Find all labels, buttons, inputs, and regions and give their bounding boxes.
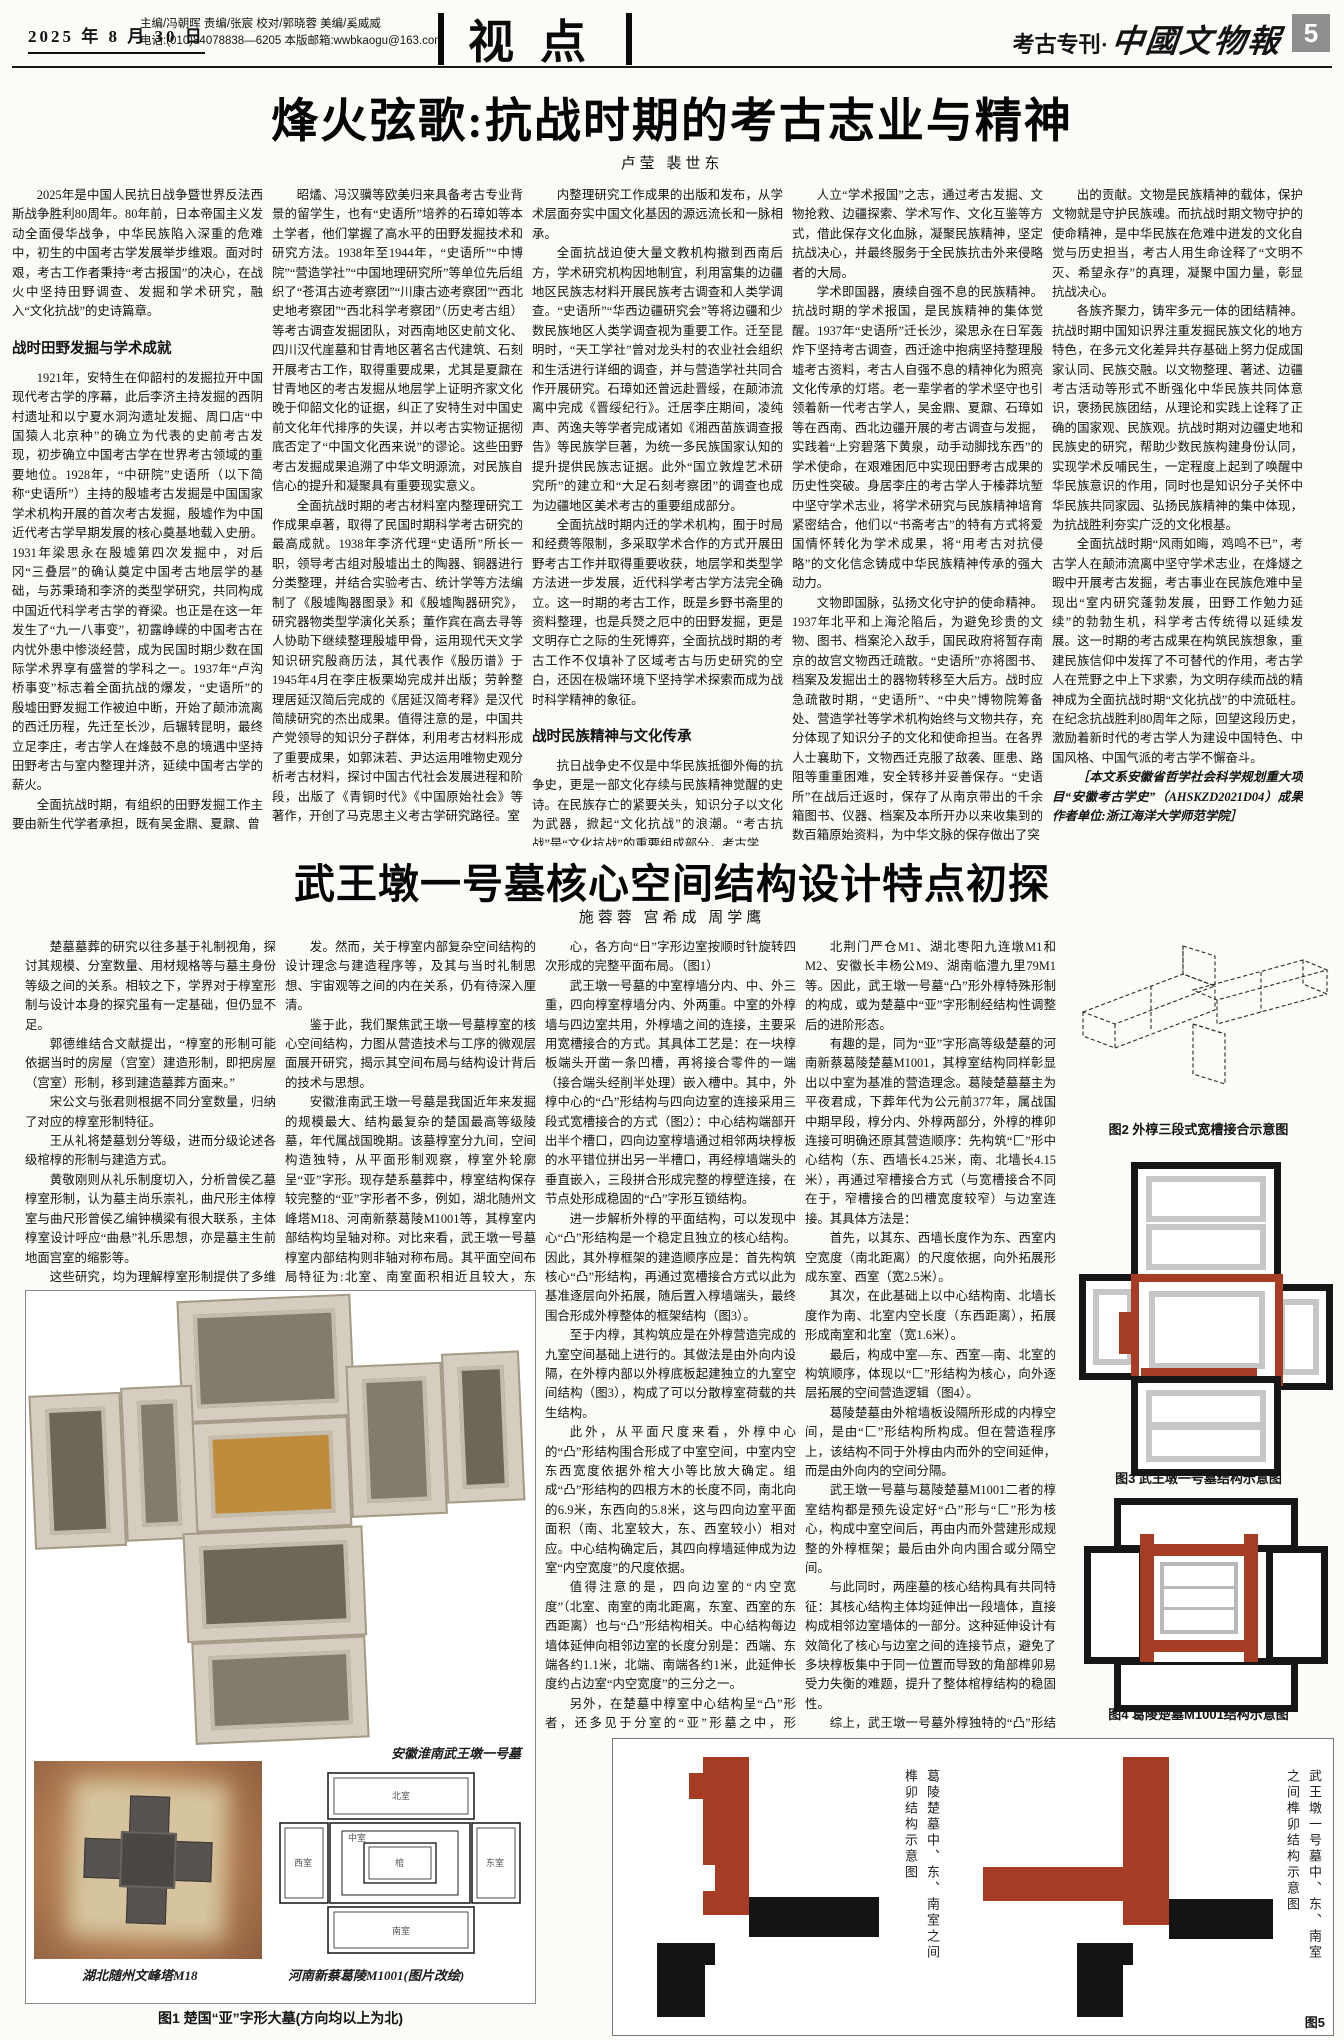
- article2-paragraph: 进一步解析外椁的平面结构，可以发现中心“凸”形结构是一个稳定且独立的核心结构。因…: [545, 1210, 796, 1326]
- article2-paragraph: 值得注意的是，四向边室的“内空宽度”（北室、南室的南北距离，东室、西室的东西距离…: [545, 1578, 796, 1694]
- article1-paragraph: 内整理研究工作成果的出版和发布，从学术层面夯实中国文化基因的源远流长和一脉相承。: [532, 186, 783, 244]
- article1-paragraph: 全面抗战迫使大量文教机构撤到西南后方，学术研究机构因地制宜，利用富集的边疆地区民…: [532, 244, 783, 516]
- figure1-plan-m1001: 北室 南室 西室 东室 中室 棺: [272, 1769, 528, 1957]
- article2-paragraph: 安徽淮南武王墩一号墓是我国近年来发掘的规模最大、结构最复杂的楚国最高等级陵墓，年…: [285, 1093, 536, 1286]
- article2-paragraph: 最后，构成中室—东、西室—南、北室的构筑顺序，体现以“匚”形结构为核心，向外逐层…: [805, 1346, 1056, 1404]
- article2-paragraph: 武王墩一号墓与葛陵楚墓M1001二者的椁室结构都是预先设定好“凸”形与“匚”形为…: [805, 1481, 1056, 1578]
- article1-column-4: 人立“学术报国”之志，通过考古发掘、文物抢救、边疆探索、学术写作、文化互鉴等方式…: [792, 186, 1043, 846]
- tomb-room-center: [192, 1416, 353, 1533]
- article2-paragraph: 鉴于此，我们聚焦武王墩一号墓椁室的核心空间结构，力图从营造技术与工序的微观层面展…: [285, 1016, 536, 1094]
- article1-columns: 2025年是中国人民抗日战争暨世界反法西斯战争胜利80周年。80年前，日本帝国主…: [12, 186, 1332, 846]
- article1-paragraph: 文物即国脉，弘扬文化守护的使命精神。1937年北平和上海沦陷后，为避免珍贵的文物…: [792, 594, 1043, 846]
- diagram2-room-east: [1266, 1546, 1328, 1664]
- figure1-photo-wenfengta-m18: [34, 1761, 262, 1959]
- paper-name-block: 考古专刊· 中國文物報: [1013, 16, 1282, 62]
- article2-paragraph: 有趣的是，同为“亚”字形高等级楚墓的河南新蔡葛陵楚墓M1001，其椁室结构同样彰…: [805, 1035, 1056, 1229]
- article1-paragraph: 全面抗战时期的考古材料室内整理研究工作成果卓著，取得了民国时期科学考古研究的最高…: [272, 497, 523, 827]
- figure4-diagram: [1084, 1498, 1314, 1698]
- article1-paragraph: 学术即国器，赓续自强不息的民族精神。抗战时期的学术报国，是民族精神的集体觉醒。1…: [792, 283, 1043, 594]
- diagram2-room-west: [1084, 1546, 1146, 1664]
- article2-column-2: 发。然而，关于椁室内部复杂空间结构的设计理念与建造程序等，及其与当时礼制思想、宇…: [285, 938, 536, 1286]
- diagram-room-south: [1131, 1376, 1281, 1476]
- article2-paragraph: 王从礼将楚墓划分等级，进而分级论述各级棺椁的形制与建造方式。: [25, 1132, 276, 1171]
- figure1-caption: 图1 楚国“亚”字形大墓(方向均以上为北): [25, 2008, 536, 2028]
- article2-paragraph: 武王墩一号墓的中室椁墙分内、中、外三重，四向椁室椁墙分内、外两重。中室的外椁墙与…: [545, 977, 796, 1210]
- article1-paragraph: 全面抗战时期，有组织的田野发掘工作主要由新生代学者承担，既有吴金鼎、夏鼐、曾: [12, 796, 263, 835]
- plan-label-center: 中室: [348, 1832, 366, 1843]
- figure5: 葛陵楚墓中、东、南室之间榫卯结构示意图 武王墩一号墓中、东、南室之间榫卯结构示意…: [612, 1738, 1334, 2036]
- article2-column-3: 心，各方向“日”字形边室按顺时针旋转四次形成的完整平面布局。（图1） 武王墩一号…: [545, 938, 796, 1734]
- article1-paragraph: 昭燏、冯汉骥等欧美归来具备考古专业背景的留学生，也有“史语所”培养的石璋如等本土…: [272, 186, 523, 497]
- figure5-caption: 图5: [1305, 2012, 1325, 2031]
- figure5-joint-geling: [643, 1757, 893, 2017]
- figure1-label-right: 河南新蔡葛陵M1001(图片改绘): [288, 1965, 464, 1984]
- contact-line: 电话:(010)84078838—6205 本版邮箱:wwbkaogu@163.…: [140, 33, 444, 50]
- article2-paragraph: 综上，武王墩一号墓外椁独特的“凸”形结构和边室三段式宽槽接合工艺，不仅代表了战国…: [805, 1714, 1056, 1734]
- article2-body: 楚墓墓葬的研究以往多基于礼制视角，探讨其规模、分室数量、用材规格等与墓主身份等级…: [12, 938, 1332, 2036]
- article1-column-3: 内整理研究工作成果的出版和发布，从学术层面夯实中国文化基因的源远流长和一脉相承。…: [532, 186, 783, 846]
- article1-section-heading-2: 战时民族精神与文化传承: [532, 725, 783, 746]
- edition-label: 考古专刊·: [1013, 27, 1108, 59]
- article2-paragraph: 郭德维结合文献提出，“椁室的形制可能依据当时的房屋（宫室）建造形制，即把房屋（宫…: [25, 1035, 276, 1093]
- article2-column-4: 北荆门严仓M1、湖北枣阳九连墩M1和M2、安徽长丰杨公M9、湖南临澧九里79M1…: [805, 938, 1056, 1734]
- article1-paragraph: 人立“学术报国”之志，通过考古发掘、文物抢救、边疆探索、学术写作、文化互鉴等方式…: [792, 186, 1043, 283]
- article1-column-1: 2025年是中国人民抗日战争暨世界反法西斯战争胜利80周年。80年前，日本帝国主…: [12, 186, 263, 846]
- page-number-badge: 5: [1292, 14, 1330, 52]
- plan-label-south: 南室: [392, 1925, 410, 1936]
- tomb-room-west-outer: [28, 1392, 127, 1550]
- figure2-isometric-drawing: [1065, 938, 1332, 1108]
- article2-paragraph: 至于内椁，其构筑应是在外椁营造完成的九室空间基础上进行的。其做法是由外向内设隔，…: [545, 1326, 796, 1423]
- editors-line: 主编/冯朝晖 责编/张宸 校对/郭晓蓉 美编/奚威威: [140, 16, 444, 33]
- article1-paragraph: 各族齐聚力，铸牢多元一体的团结精神。抗战时期中国知识界注重发掘民族文化的地方特色…: [1052, 302, 1303, 535]
- article1-paragraph: 出的贡献。文物是民族精神的载体，保护文物就是守护民族魂。而抗战时期文物守护的使命…: [1052, 186, 1303, 302]
- article2-paragraph: 发。然而，关于椁室内部复杂空间结构的设计理念与建造程序等，及其与当时礼制思想、宇…: [285, 938, 536, 1016]
- article2-title: 武王墩一号墓核心空间结构设计特点初探: [0, 850, 1344, 910]
- article1-authors: 卢莹 裴世东: [0, 152, 1344, 173]
- paper-name: 中國文物報: [1110, 16, 1285, 62]
- diagram-red-connector-south: [1141, 1368, 1257, 1376]
- masthead-left-bar: [438, 13, 444, 65]
- article1-funding-note: ［本文系安徽省哲学社会科学规划重大项目“安徽考古学史”（AHSKZD2021D0…: [1052, 768, 1303, 826]
- figure1-frame: 安徽淮南武王墩一号墓 湖北随州文峰塔M18: [25, 1290, 536, 2004]
- header-rule: [12, 66, 1332, 68]
- figure5-label-left: 葛陵楚墓中、东、南室之间榫卯结构示意图: [899, 1769, 943, 1965]
- article2-paragraph: 葛陵楚墓由外棺墙板设隔所形成的内椁空间，是由“匚”形结构所构成。但在营造程序上，…: [805, 1404, 1056, 1482]
- tomb-room-south-inner: [183, 1525, 368, 1643]
- article2-paragraph: 与此同时，两座墓的核心结构具有共同特征：其核心结构主体均延伸出一段墙体，直接构成…: [805, 1578, 1056, 1714]
- article1-paragraph: 1921年，安特生在仰韶村的发掘拉开中国现代考古学的序幕，此后李济主持发掘的西阴…: [12, 369, 263, 796]
- section-masthead: 视点: [438, 6, 632, 72]
- figure1-label-main: 安徽淮南武王墩一号墓: [391, 1743, 521, 1762]
- tomb-room-east-outer: [441, 1350, 525, 1503]
- article1-paragraph: 全面抗战时期内迁的学术机构，囿于时局和经费等限制，多采取学术合作的方式开展田野考…: [532, 516, 783, 710]
- figure5-joint-wuwangdun: [973, 1757, 1273, 2017]
- tomb-room-south-outer: [191, 1635, 369, 1744]
- figure3-diagram: [1079, 1162, 1319, 1462]
- diagram-red-connector-west: [1119, 1312, 1133, 1354]
- article2-paragraph: 心，各方向“日”字形边室按顺时针旋转四次形成的完整平面布局。（图1）: [545, 938, 796, 977]
- article1-paragraph: 2025年是中国人民抗日战争暨世界反法西斯战争胜利80周年。80年前，日本帝国主…: [12, 186, 263, 322]
- article2-paragraph: 此外，从平面尺度来看，外椁中心的“凸”形结构围合形成了中室空间，中室内空东西宽度…: [545, 1423, 796, 1578]
- masthead-right-bar: [626, 13, 632, 65]
- article2-paragraph: 北荆门严仓M1、湖北枣阳九连墩M1和M2、安徽长丰杨公M9、湖南临澧九里79M1…: [805, 938, 1056, 1035]
- diagram-room-north: [1131, 1162, 1281, 1284]
- article1-title: 烽火弦歌:抗战时期的考古志业与精神: [0, 82, 1344, 151]
- article2-paragraph: 另外，在楚墓中椁室中心结构呈“凸”形者，还多见于分室的“亚”形墓之中，形成“匚”…: [545, 1695, 796, 1734]
- plan-label-east: 东室: [486, 1857, 504, 1868]
- article2-paragraph: 宋公文与张君则根据不同分室数量，归纳了对应的椁室形制特征。: [25, 1093, 276, 1132]
- figure1-label-left: 湖北随州文峰塔M18: [82, 1965, 198, 1984]
- article2-paragraph: 其次，在此基础上以中心结构南、北墙长度作为南、北室内空长度（东西距离），拓展形成…: [805, 1287, 1056, 1345]
- article1-column-5: 出的贡献。文物是民族精神的载体，保护文物就是守护民族魂。而抗战时期文物守护的使命…: [1052, 186, 1303, 846]
- figure2-caption: 图2 外椁三段式宽槽接合示意图: [1065, 1119, 1332, 1138]
- masthead-meta: 主编/冯朝晖 责编/张宸 校对/郭晓蓉 美编/奚威威 电话:(010)84078…: [140, 16, 444, 50]
- figure4: 图4 葛陵楚墓M1001结构示意图: [1065, 1498, 1332, 1723]
- article1-paragraph: 全面抗战时期“风雨如晦，鸡鸣不已”，考古学人在颠沛流离中坚守学术志业，在烽燧之暇…: [1052, 535, 1303, 768]
- article1-column-2: 昭燏、冯汉骥等欧美归来具备考古专业背景的留学生，也有“史语所”培养的石璋如等本土…: [272, 186, 523, 846]
- figure1-photo-wuwangdun-chamber: [25, 1290, 535, 1752]
- diagram2-room-south: [1114, 1658, 1298, 1712]
- article2-column-1: 楚墓墓葬的研究以往多基于礼制视角，探讨其规模、分室数量、用材规格等与墓主身份等级…: [25, 938, 276, 1286]
- diagram2-center: [1140, 1534, 1258, 1662]
- plan-label-coffin: 棺: [395, 1857, 404, 1868]
- section-title: 视点: [458, 6, 612, 72]
- tomb-room-west-inner: [120, 1385, 199, 1542]
- tomb-room-north: [176, 1294, 355, 1423]
- article1-paragraph: 抗日战争史不仅是中华民族抵御外侮的抗争史，更是一部文化存续与民族精神觉醒的史诗。…: [532, 757, 783, 846]
- article2-paragraph: 首先，以其东、西墙长度作为东、西室内空宽度（南北距离）的尺度依据，向外拓展形成东…: [805, 1229, 1056, 1287]
- tomb-room-east-inner: [345, 1362, 448, 1518]
- article1-section-heading-1: 战时田野发掘与学术成就: [12, 337, 263, 358]
- figure5-label-right: 武王墩一号墓中、东、南室之间榫卯结构示意图: [1281, 1769, 1325, 1965]
- article2-paragraph: 这些研究，均为理解椁室形制提供了多维启: [25, 1268, 276, 1286]
- figure3: 图3 武王墩一号墓结构示意图: [1065, 1162, 1332, 1487]
- newspaper-page: 2025 年 8 月 30 日 主编/冯朝晖 责编/张宸 校对/郭晓蓉 美编/奚…: [0, 0, 1344, 2040]
- figure1: 安徽淮南武王墩一号墓 湖北随州文峰塔M18: [25, 1290, 536, 2034]
- plan-label-west: 西室: [294, 1857, 312, 1868]
- article2-paragraph: 楚墓墓葬的研究以往多基于礼制视角，探讨其规模、分室数量、用材规格等与墓主身份等级…: [25, 938, 276, 1035]
- article2-paragraph: 黄敬刚则从礼乐制度切入，分析曾侯乙墓椁室形制，认为墓主尚乐崇礼，曲尺形主体椁室与…: [25, 1171, 276, 1268]
- figure2: 图2 外椁三段式宽槽接合示意图: [1065, 938, 1332, 1138]
- article2-authors: 施蓉蓉 宫希成 周学鹰: [0, 906, 1344, 927]
- plan-label-north: 北室: [392, 1790, 410, 1801]
